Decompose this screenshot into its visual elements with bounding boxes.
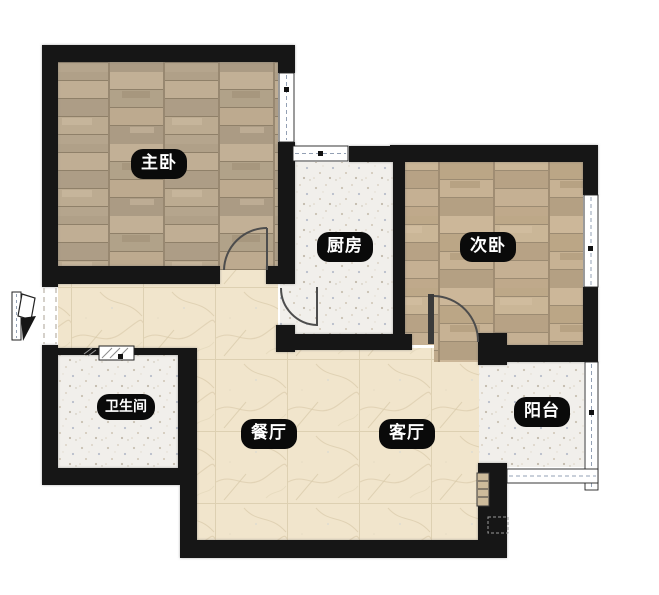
room-label-kitchen: 厨房 bbox=[317, 232, 373, 262]
room-label-dining-room: 餐厅 bbox=[241, 419, 297, 449]
second-bedroom-window bbox=[584, 195, 598, 287]
room-label-balcony: 阳台 bbox=[514, 397, 570, 427]
master-bedroom-window bbox=[279, 73, 294, 142]
kitchen-window bbox=[293, 146, 348, 161]
floor-plan-page: { "rooms": [ {"key": "master-bedroom", "… bbox=[0, 0, 659, 595]
dining-living-floor bbox=[196, 348, 479, 542]
room-label-second-bedroom: 次卧 bbox=[460, 232, 516, 262]
radiator bbox=[477, 473, 489, 506]
room-label-bathroom: 卫生间 bbox=[97, 394, 155, 420]
entry-door bbox=[12, 288, 56, 344]
kitchen-door-threshold bbox=[280, 283, 295, 326]
second-bedroom-door-threshold bbox=[434, 345, 478, 362]
room-label-master-bedroom: 主卧 bbox=[131, 149, 187, 179]
hallway-floor bbox=[58, 282, 278, 352]
floor-plan-drawing bbox=[0, 0, 659, 595]
room-label-living-room: 客厅 bbox=[379, 419, 435, 449]
balcony-window-bottom bbox=[507, 469, 598, 483]
